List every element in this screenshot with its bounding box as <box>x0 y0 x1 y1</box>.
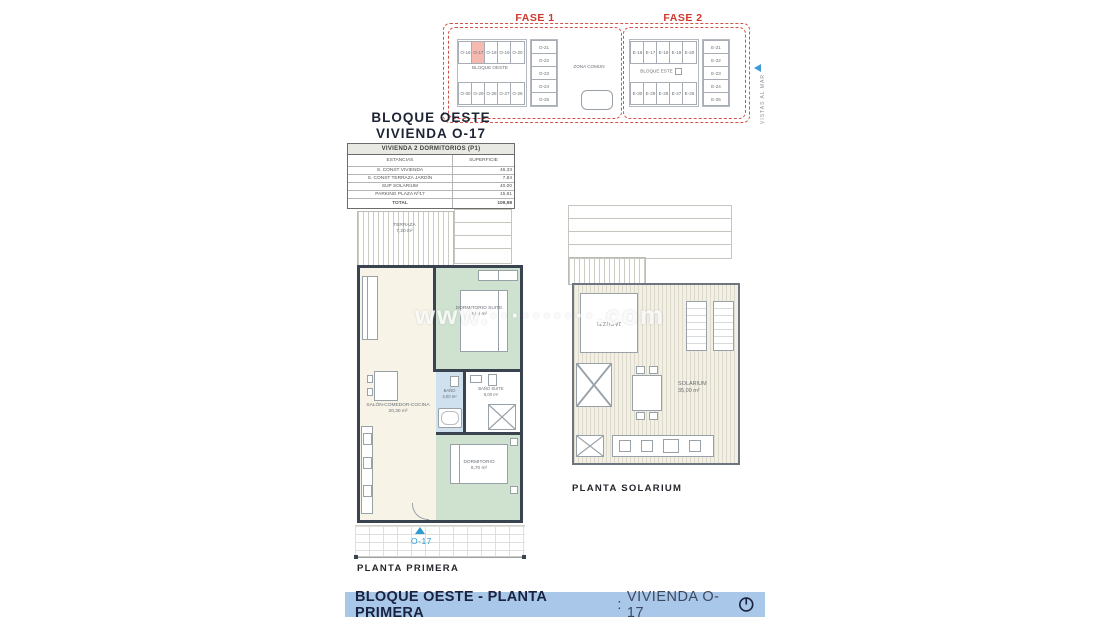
summer-kitchen-counter <box>612 435 714 457</box>
footer-bar: BLOQUE OESTE - PLANTA PRIMERA : VIVIENDA… <box>345 592 765 617</box>
row-name: PARKING PLAZA Nº17 <box>348 191 453 198</box>
site-unit-o20: O-20 <box>510 41 525 64</box>
kitchen-sink <box>363 433 372 445</box>
site-unit-e22: E-22 <box>703 53 729 67</box>
pavement-strip <box>355 525 525 557</box>
table-row: SUP SOLARIUM 40,00 <box>348 183 514 191</box>
shower <box>488 404 516 430</box>
table-header: VIVIENDA 2 DORMITORIOS (P1) <box>348 144 514 155</box>
planta-primera-caption: PLANTA PRIMERA <box>357 563 459 574</box>
small-square-glyph <box>675 68 682 75</box>
title-line2: VIVIENDA O-17 <box>345 126 517 142</box>
chair <box>636 366 645 374</box>
north-compass-icon <box>738 596 755 613</box>
solarium-deck: JACUZZI SOLARIUM 35,00 m² <box>572 283 740 465</box>
footer-separator: : <box>617 597 622 613</box>
title-line1: BLOQUE OESTE <box>345 110 517 126</box>
site-unit-e24: E-24 <box>703 79 729 93</box>
sun-lounger <box>713 301 734 351</box>
salon-label: SALÓN-COMEDOR-COCINA 20,30 m² <box>362 403 434 416</box>
table-row: S. CONST TERRAZA JARDÍN 7,84 <box>348 175 514 183</box>
site-unit-o21: O-21 <box>531 40 557 54</box>
dimension-endpoint <box>354 555 358 559</box>
staircase <box>576 363 612 407</box>
kitchen-counter <box>361 426 373 514</box>
room-area: 5,00 m² <box>466 392 516 398</box>
row-value: 46,33 <box>453 167 514 174</box>
row-name: S. CONST VIVIENDA <box>348 167 453 174</box>
kitchen-appliance <box>363 485 372 497</box>
planta-solarium-plan: JACUZZI SOLARIUM 35,00 m² PLANTA SOLARIU… <box>566 205 746 505</box>
closet <box>478 270 518 281</box>
counter-unit <box>689 440 701 452</box>
surface-table: VIVIENDA 2 DORMITORIOS (P1) ESTANCIAS SU… <box>347 143 515 209</box>
chair <box>636 412 645 420</box>
bloque-este-label: BLOQUE ESTE <box>630 68 692 75</box>
room-area: 20,30 m² <box>362 409 434 415</box>
terraza-area <box>357 211 454 267</box>
col-superficie: SUPERFICIE <box>453 155 514 166</box>
room-area: 3,00 m² <box>436 394 463 400</box>
bloque-oeste-label: BLOQUE OESTE <box>460 65 520 71</box>
row-value: 15,81 <box>453 191 514 198</box>
zona-comun-label: ZONA COMUN <box>559 64 619 70</box>
kitchen-hob <box>363 457 372 469</box>
site-unit-e25: E-25 <box>703 92 729 106</box>
planta-primera-plan: TERRAZA 7,20 m² <box>355 205 537 580</box>
site-unit-o24: O-24 <box>531 79 557 93</box>
pool-outline <box>581 90 613 110</box>
washbasin <box>470 375 482 383</box>
toilet <box>488 374 497 386</box>
stair-bulkhead-hatch <box>568 257 646 285</box>
footer-title-regular: VIVIENDA O-17 <box>627 589 734 621</box>
site-unit-o26: O-26 <box>510 82 525 105</box>
chair <box>367 375 373 383</box>
terraza-label: TERRAZA 7,20 m² <box>367 223 442 236</box>
outdoor-table <box>632 375 662 411</box>
unit-marker-badge: O-17 <box>411 536 432 546</box>
neighbor-terrace-strip <box>454 248 512 264</box>
row-name: S. CONST TERRAZA JARDÍN <box>348 175 453 182</box>
site-unit-e20: E-20 <box>682 41 697 64</box>
row-value: 40,00 <box>453 183 514 190</box>
dormitorio-suite-label: DORMITORIO SUITE 9,60 m² <box>440 306 518 319</box>
dimension-endpoint <box>522 555 526 559</box>
sun-lounger <box>686 301 707 351</box>
site-unit-e21: E-21 <box>703 40 729 54</box>
nightstand <box>510 486 518 494</box>
chair <box>649 412 658 420</box>
col-estancias: ESTANCIAS <box>348 155 453 166</box>
vistas-al-mar-label: VISTAS AL MAR <box>760 52 766 124</box>
apartment-unit: SALÓN-COMEDOR-COCINA 20,30 m² DORMITORIO… <box>357 265 523 523</box>
toilet <box>450 376 459 387</box>
chair <box>367 388 373 396</box>
site-unit-e26: E-26 <box>682 82 697 105</box>
room-area: 7,20 m² <box>367 229 442 235</box>
plan-sheet: FASE 1 FASE 2 O-16 O-17 O-18 O-19 O-20 B… <box>0 0 1110 626</box>
dormitorio-label: DORMITORIO 6,70 m² <box>440 460 518 473</box>
room-area: 9,60 m² <box>440 312 518 318</box>
entrance-door-arc <box>412 503 429 520</box>
site-unit-o25: O-25 <box>531 92 557 106</box>
bathtub <box>438 408 462 428</box>
sofa <box>362 276 378 340</box>
room-area: 6,70 m² <box>440 466 518 472</box>
jacuzzi: JACUZZI <box>580 293 638 353</box>
suite-bed <box>460 290 508 352</box>
row-value: 7,84 <box>453 175 514 182</box>
jacuzzi-label: JACUZZI <box>581 294 637 352</box>
table-row: PARKING PLAZA Nº17 15,81 <box>348 191 514 199</box>
wall-segment <box>433 268 436 372</box>
dimension-line <box>355 557 525 558</box>
room-name: SOLARIUM <box>678 381 734 388</box>
site-unit-o22: O-22 <box>531 53 557 67</box>
counter-unit <box>641 440 653 452</box>
bano-suite-label: BAÑO SUITE 5,00 m² <box>466 386 516 397</box>
table-row: S. CONST VIVIENDA 46,33 <box>348 167 514 175</box>
solarium-label: SOLARIUM 35,00 m² <box>678 381 734 396</box>
unit-marker-arrow-icon <box>415 527 425 534</box>
nightstand <box>510 438 518 446</box>
counter-sink <box>663 439 679 453</box>
bano-label: BAÑO 3,00 m² <box>436 388 463 399</box>
site-unit-e23: E-23 <box>703 66 729 80</box>
footer-title-bold: BLOQUE OESTE - PLANTA PRIMERA <box>355 589 612 621</box>
row-name: SUP SOLARIUM <box>348 183 453 190</box>
counter-unit <box>619 440 631 452</box>
site-unit-o23: O-23 <box>531 66 557 80</box>
room-area: 35,00 m² <box>678 388 734 395</box>
dining-table <box>374 371 398 401</box>
bloque-este-text: BLOQUE ESTE <box>640 69 672 74</box>
table-column-headers: ESTANCIAS SUPERFICIE <box>348 155 514 167</box>
storage-box <box>576 435 604 457</box>
title-block: BLOQUE OESTE VIVIENDA O-17 <box>345 110 517 142</box>
chair <box>649 366 658 374</box>
planta-solarium-caption: PLANTA SOLARIUM <box>572 483 682 494</box>
